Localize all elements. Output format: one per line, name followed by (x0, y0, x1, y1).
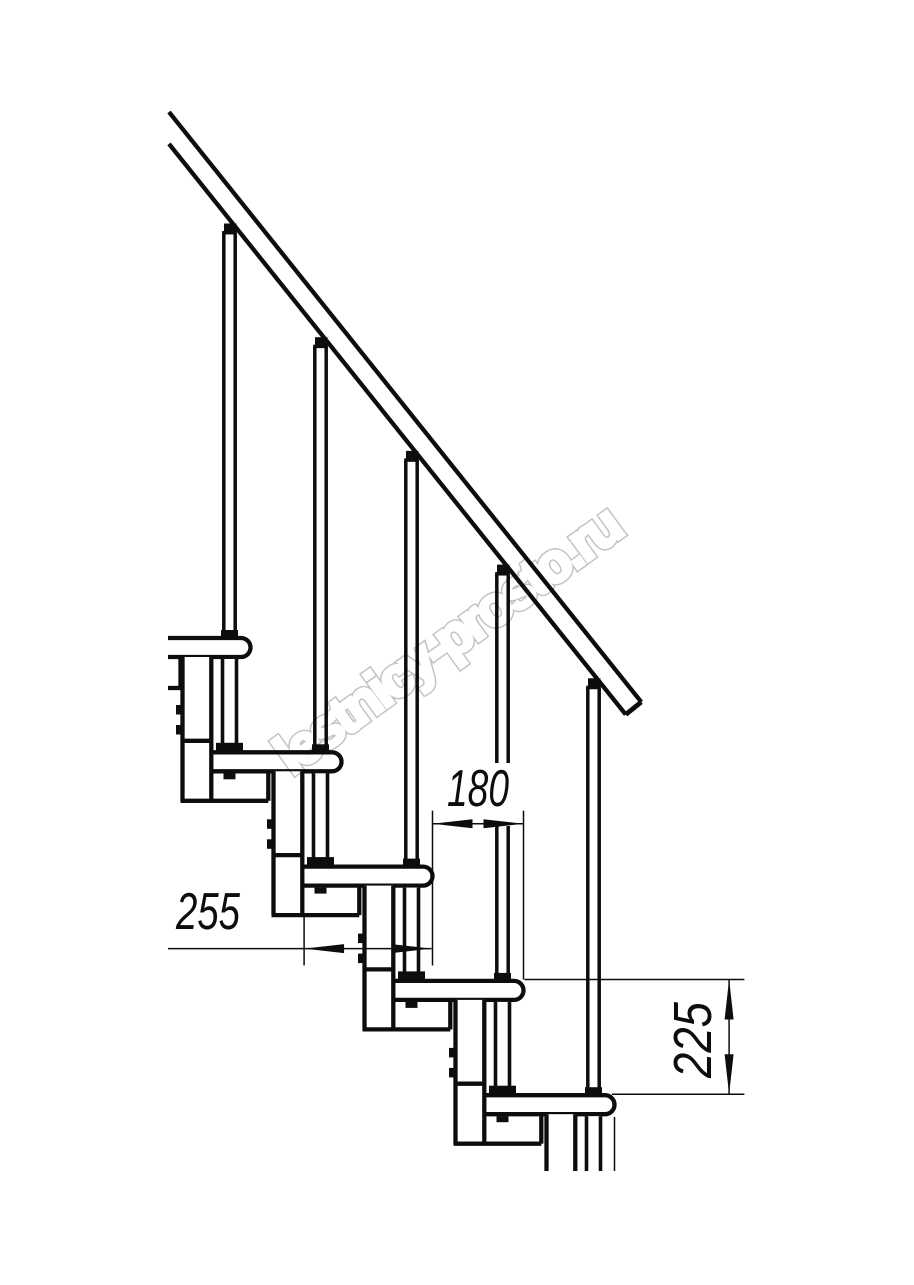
svg-text:180: 180 (447, 760, 509, 818)
svg-text:225: 225 (663, 1001, 723, 1079)
svg-text:255: 255 (175, 883, 241, 941)
